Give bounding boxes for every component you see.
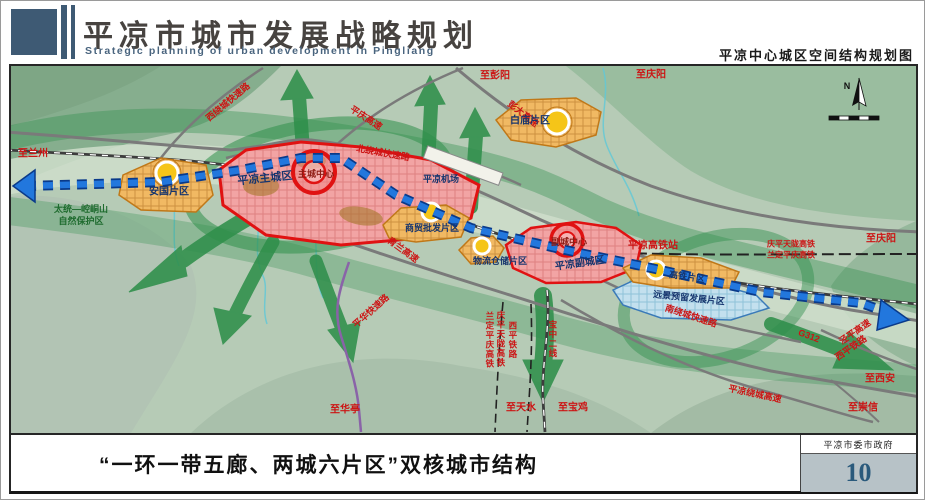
map-frame: N 至兰州 至彭阳 至庆阳 至庆阳 至西安 至崇信 至华亭 至天水 至宝鸡 西绕… [9,64,918,435]
map-canvas: N 至兰州 至彭阳 至庆阳 至庆阳 至西安 至崇信 至华亭 至天水 至宝鸡 西绕… [11,66,916,433]
structure-caption: “一环一带五廊、两城六片区”双核城市结构 [99,449,538,479]
map-sheet-title: 平凉中心城区空间结构规划图 [719,45,914,64]
header-bar-decoration-thin [71,5,75,59]
baimiao-node [545,110,569,134]
page-header: 平凉市城市发展战略规划 Strategic planning of urban … [1,1,925,64]
planning-document-page: 平凉市城市发展战略规划 Strategic planning of urban … [0,0,925,500]
header-bar-decoration [61,5,67,59]
header-square-decoration [11,9,57,55]
wuliu-node [474,238,490,254]
page-title-english: Strategic planning of urban development … [85,45,435,57]
title-block: 平凉市委市政府 10 [800,435,916,491]
map-artwork [11,66,916,433]
page-number: 10 [801,454,916,492]
agency-name: 平凉市委市政府 [801,435,916,454]
page-footer: “一环一带五廊、两城六片区”双核城市结构 平凉市委市政府 10 [9,435,918,494]
scale-bar [829,116,879,120]
